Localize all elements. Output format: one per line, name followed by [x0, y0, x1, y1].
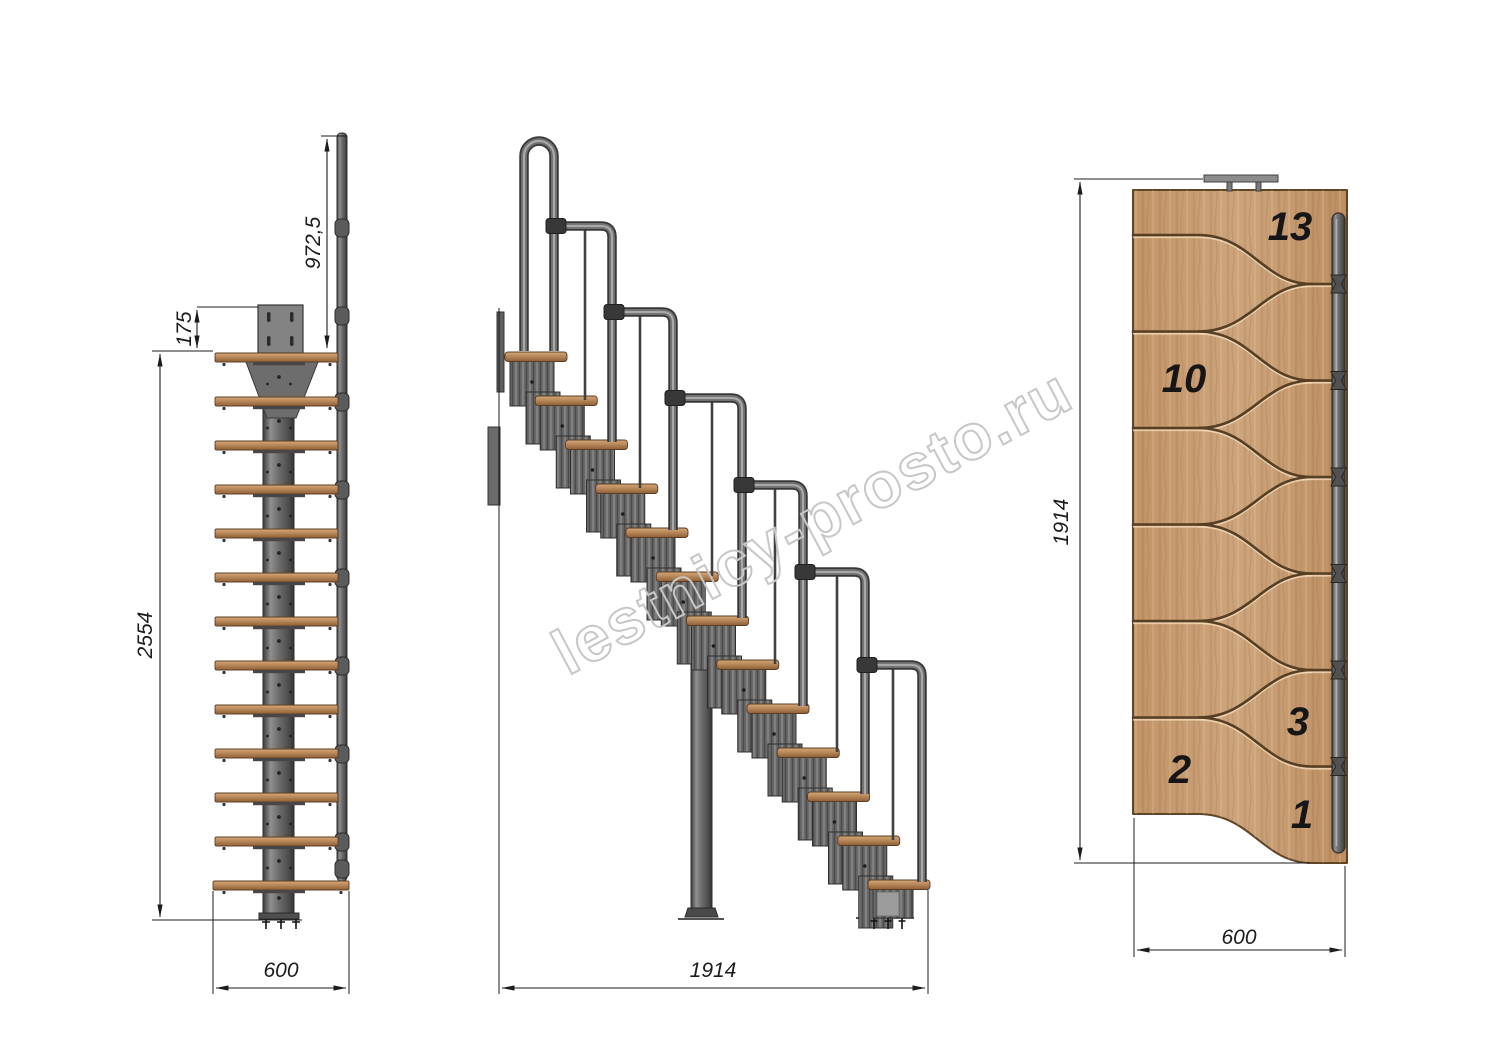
tread-bracket — [253, 714, 305, 717]
mark — [277, 551, 281, 555]
mark — [266, 735, 269, 738]
tread — [213, 881, 349, 890]
tread — [215, 793, 338, 802]
mark — [266, 427, 269, 430]
handrail-joint — [335, 219, 349, 237]
mark — [266, 515, 269, 518]
dim-label-plan-width: 600 — [1221, 926, 1256, 949]
wall-plate-upper — [497, 312, 504, 392]
column-base-plate — [259, 913, 299, 919]
mark — [328, 363, 331, 366]
tread — [215, 573, 338, 582]
tread-bracket — [253, 406, 305, 409]
tread-number-2: 2 — [1168, 748, 1191, 792]
mark — [266, 691, 269, 694]
dim-label-side-run: 1914 — [690, 959, 737, 982]
mark — [328, 495, 331, 498]
mark — [222, 759, 225, 762]
front-dimensions: 972,5 175 2554 600 — [134, 136, 349, 994]
mark — [289, 735, 292, 738]
mark — [289, 559, 292, 562]
tread — [838, 836, 900, 846]
mark — [266, 779, 269, 782]
tread — [215, 529, 338, 538]
mark — [222, 407, 225, 410]
mark — [328, 539, 331, 542]
tread — [215, 617, 338, 626]
plate-slot — [290, 312, 294, 322]
handrail-joint — [335, 860, 349, 878]
mark — [266, 559, 269, 562]
tread — [717, 660, 779, 670]
mark — [222, 847, 225, 850]
mark — [328, 583, 331, 586]
mark — [222, 495, 225, 498]
mark — [222, 583, 225, 586]
mark — [266, 823, 269, 826]
handrail-joint — [335, 307, 349, 325]
handrail-post — [337, 133, 347, 881]
mark — [328, 715, 331, 718]
tread — [215, 705, 338, 714]
mark — [222, 715, 225, 718]
dim-label-plan-run: 1914 — [1050, 499, 1073, 546]
mark — [651, 556, 655, 560]
mark — [277, 463, 281, 467]
mark — [222, 671, 225, 674]
tread — [215, 661, 338, 670]
mark — [277, 507, 281, 511]
mark — [289, 603, 292, 606]
dim-label-total-height: 2554 — [134, 612, 157, 660]
tread-bracket — [253, 890, 305, 893]
mark — [277, 815, 281, 819]
mark — [530, 380, 534, 384]
mark — [742, 688, 746, 692]
stair-drawing: 972,5 175 2554 600 1914 13 10 3 2 1 1914 — [0, 0, 1500, 1061]
mark — [289, 515, 292, 518]
mark — [222, 451, 225, 454]
mark — [277, 375, 281, 379]
mark — [277, 727, 281, 731]
wall-bracket — [1204, 175, 1278, 182]
mark — [772, 732, 776, 736]
mark — [328, 627, 331, 630]
wall-mount-plate — [258, 305, 303, 353]
tread-number-10: 10 — [1162, 357, 1207, 401]
mark — [560, 424, 564, 428]
tread-number-3: 3 — [1287, 700, 1309, 744]
mark — [277, 896, 281, 900]
mark — [277, 683, 281, 687]
mark — [328, 671, 331, 674]
mark — [266, 603, 269, 606]
mark — [712, 644, 716, 648]
tread — [215, 441, 338, 450]
mark — [289, 779, 292, 782]
mark — [266, 383, 269, 386]
tread-bracket — [253, 538, 305, 541]
mark — [289, 427, 292, 430]
mark — [328, 847, 331, 850]
mark — [863, 864, 867, 868]
mark — [266, 867, 269, 870]
mark — [222, 627, 225, 630]
tread — [777, 748, 839, 758]
handrail-joint — [546, 219, 566, 234]
mark — [289, 867, 292, 870]
anchor-bolt — [899, 918, 906, 929]
mark — [339, 891, 342, 894]
tread-number-1: 1 — [1291, 793, 1313, 837]
column-head-bracket — [246, 362, 318, 418]
wall-bracket-stub — [1256, 182, 1261, 191]
mark — [289, 383, 292, 386]
mark — [222, 539, 225, 542]
mark — [802, 776, 806, 780]
pole-base — [685, 908, 718, 917]
tread — [215, 485, 338, 494]
tread-bracket — [253, 758, 305, 761]
tread — [535, 396, 597, 406]
tread-bracket — [253, 846, 305, 849]
handrail-joint — [734, 478, 754, 493]
mark — [222, 363, 225, 366]
stair-drawing-canvas: 972,5 175 2554 600 1914 13 10 3 2 1 1914 — [0, 0, 1500, 1061]
plate-slot — [267, 336, 271, 346]
dim-label-plate-offset: 175 — [173, 311, 196, 346]
plate-slot — [290, 336, 294, 346]
mark — [289, 471, 292, 474]
plan-structure — [1133, 175, 1347, 863]
handrail-loop — [524, 141, 554, 351]
tread-bracket — [253, 494, 305, 497]
handrail-joint — [665, 391, 685, 406]
mark — [289, 823, 292, 826]
handrail-joint — [604, 305, 624, 320]
mark — [289, 647, 292, 650]
base-module-panel — [877, 892, 899, 916]
tread — [215, 749, 338, 758]
mark — [222, 803, 225, 806]
wall-plate-lower — [488, 427, 500, 505]
mark — [621, 512, 625, 516]
mark — [277, 419, 281, 423]
tread-bracket — [253, 626, 305, 629]
tread-number-13: 13 — [1268, 205, 1313, 249]
tread — [596, 484, 658, 494]
mark — [277, 639, 281, 643]
tread-bracket — [253, 670, 305, 673]
plan-view: 13 10 3 2 1 1914 600 — [1050, 175, 1347, 957]
front-structure — [213, 133, 349, 929]
tread — [566, 440, 628, 450]
mark — [222, 891, 225, 894]
tread — [808, 792, 870, 802]
mark — [833, 820, 837, 824]
mark — [591, 468, 595, 472]
mark — [328, 407, 331, 410]
mark — [266, 647, 269, 650]
mark — [277, 859, 281, 863]
mark — [328, 803, 331, 806]
tread-bracket — [253, 450, 305, 453]
front-view: 972,5 175 2554 600 — [134, 133, 349, 994]
mark — [289, 691, 292, 694]
tread — [626, 528, 688, 538]
mark — [328, 759, 331, 762]
tread — [215, 837, 338, 846]
tread-bracket — [253, 362, 305, 365]
plate-slot — [267, 312, 271, 322]
tread-bracket — [253, 802, 305, 805]
dim-label-front-width: 600 — [263, 959, 298, 982]
mark — [328, 451, 331, 454]
tread — [505, 352, 567, 362]
handrail-joint — [857, 658, 877, 673]
mark — [277, 771, 281, 775]
wall-bracket-stub — [1227, 182, 1232, 191]
tread — [215, 397, 338, 406]
mark — [277, 595, 281, 599]
tread-bracket — [253, 582, 305, 585]
tread — [215, 353, 338, 362]
dim-label-handrail-height: 972,5 — [302, 216, 325, 269]
mark — [266, 471, 269, 474]
